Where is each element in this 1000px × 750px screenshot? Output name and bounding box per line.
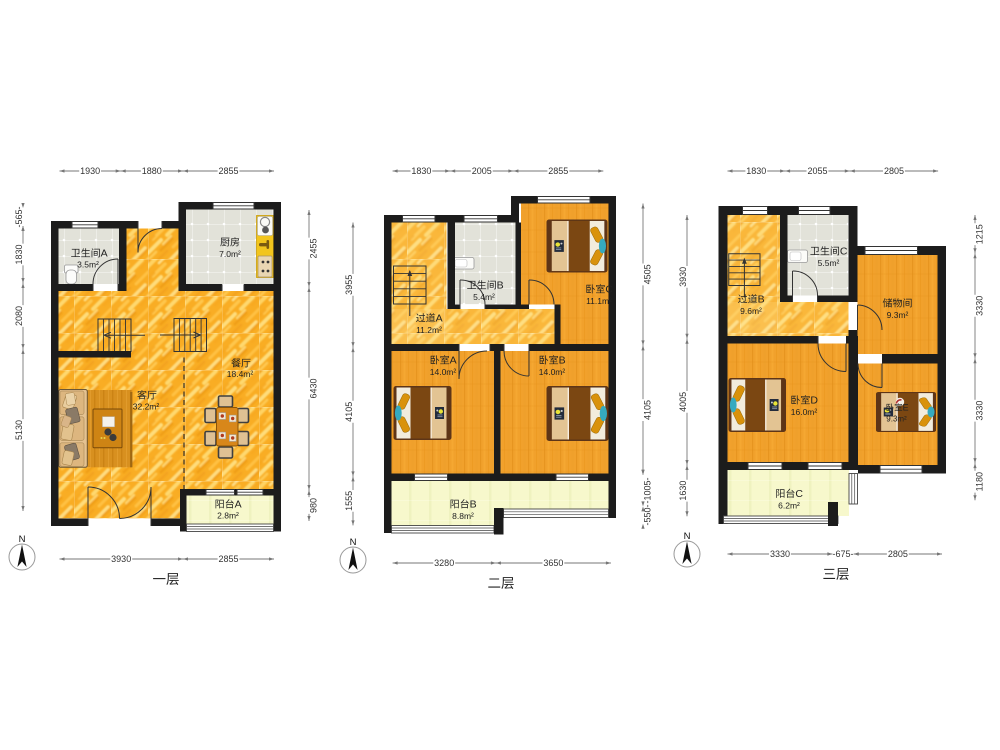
svg-text:3955: 3955: [344, 275, 354, 295]
svg-text:4105: 4105: [344, 402, 354, 422]
svg-text:3930: 3930: [111, 554, 131, 564]
svg-text:2805: 2805: [888, 549, 908, 559]
svg-text:1180: 1180: [974, 472, 984, 491]
svg-text:11.2m²: 11.2m²: [416, 325, 442, 335]
svg-text:B: B: [559, 355, 566, 367]
svg-text:14.0m²: 14.0m²: [539, 367, 566, 377]
svg-text:-550-: -550-: [642, 504, 652, 525]
svg-text:3330: 3330: [770, 549, 790, 559]
svg-text:D: D: [810, 395, 818, 407]
svg-text:A: A: [450, 355, 457, 367]
svg-text:2455: 2455: [308, 238, 318, 258]
svg-text:3.5m²: 3.5m²: [77, 260, 99, 270]
svg-text:7.0m²: 7.0m²: [219, 249, 241, 259]
svg-text:4005: 4005: [678, 392, 688, 412]
svg-text:2855: 2855: [218, 554, 238, 564]
svg-text:980: 980: [308, 498, 318, 513]
svg-text:1555: 1555: [344, 491, 354, 511]
svg-text:1830: 1830: [14, 244, 24, 264]
svg-text:11.1m²: 11.1m²: [586, 296, 612, 306]
svg-text:6430: 6430: [308, 378, 318, 398]
svg-text:3330: 3330: [974, 401, 984, 421]
svg-text:B: B: [497, 280, 504, 292]
svg-text:9.6m²: 9.6m²: [740, 306, 762, 316]
svg-text:4505: 4505: [642, 264, 652, 284]
svg-text:18.4m²: 18.4m²: [227, 369, 254, 379]
svg-text:1880: 1880: [142, 166, 162, 176]
svg-text:1630: 1630: [678, 481, 688, 501]
svg-text:C: C: [605, 284, 613, 296]
svg-text:3280: 3280: [434, 558, 454, 568]
svg-text:2805: 2805: [884, 166, 904, 176]
svg-text:5.5m²: 5.5m²: [818, 258, 840, 268]
svg-text:1830: 1830: [411, 166, 431, 176]
svg-text:3330: 3330: [974, 296, 984, 316]
svg-text:B: B: [470, 499, 477, 511]
svg-text:8.8m²: 8.8m²: [452, 511, 474, 521]
svg-text:-675-: -675-: [832, 549, 853, 559]
svg-text:A: A: [101, 248, 108, 260]
svg-text:2855: 2855: [548, 166, 568, 176]
svg-text:N: N: [350, 537, 357, 548]
svg-text:16.0m²: 16.0m²: [791, 407, 818, 417]
svg-text:9.3m²: 9.3m²: [887, 310, 909, 320]
svg-text:4105: 4105: [642, 400, 652, 420]
svg-text:A: A: [235, 499, 242, 511]
svg-text:C: C: [840, 246, 848, 258]
svg-text:2055: 2055: [807, 166, 827, 176]
svg-text:A: A: [436, 313, 443, 325]
svg-text:5.4m²: 5.4m²: [473, 292, 495, 302]
svg-text:-565-: -565-: [14, 206, 24, 227]
svg-text:B: B: [758, 294, 765, 306]
svg-text:1830: 1830: [746, 166, 766, 176]
svg-text:32.2m²: 32.2m²: [133, 402, 160, 412]
svg-text:9.3m²: 9.3m²: [886, 414, 907, 423]
svg-text:3650: 3650: [543, 558, 563, 568]
svg-text:2005: 2005: [472, 166, 492, 176]
svg-text:1215: 1215: [974, 224, 984, 244]
svg-text:N: N: [19, 534, 26, 545]
svg-text:3930: 3930: [678, 267, 688, 287]
svg-text:5130: 5130: [14, 420, 24, 440]
svg-text:2.8m²: 2.8m²: [217, 511, 239, 521]
svg-text:2855: 2855: [218, 166, 238, 176]
svg-text:-1005-: -1005-: [642, 477, 652, 503]
svg-text:E: E: [903, 403, 909, 413]
svg-text:2080: 2080: [14, 306, 24, 326]
svg-text:C: C: [795, 488, 803, 500]
svg-text:N: N: [684, 531, 691, 542]
svg-text:1930: 1930: [80, 166, 100, 176]
svg-text:14.0m²: 14.0m²: [430, 367, 457, 377]
svg-text:6.2m²: 6.2m²: [778, 501, 800, 511]
